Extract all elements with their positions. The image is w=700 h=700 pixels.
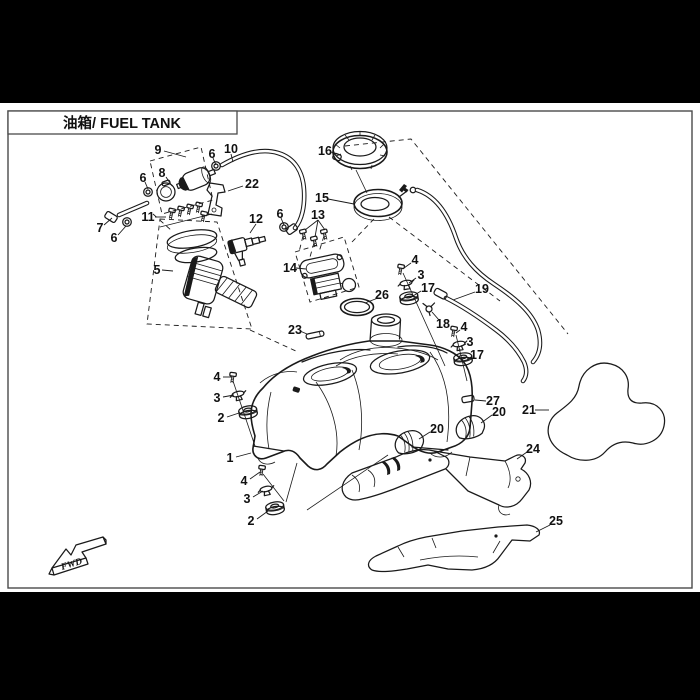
callout-label-20: 20 (430, 422, 444, 436)
callout-label-6: 6 (277, 207, 284, 221)
callout-label-19: 19 (475, 282, 489, 296)
callout-label-16: 16 (318, 144, 332, 158)
callout-label-26: 26 (375, 288, 389, 302)
callout-label-4: 4 (412, 253, 419, 267)
callout-label-13: 13 (311, 208, 325, 222)
callout-label-9: 9 (155, 143, 162, 157)
callout-label-14: 14 (283, 261, 297, 275)
callout-label-18: 18 (436, 317, 450, 331)
callout-label-4: 4 (214, 370, 221, 384)
callout-label-6: 6 (209, 147, 216, 161)
page-title: 油箱/ FUEL TANK (63, 114, 181, 132)
callout-label-2: 2 (248, 514, 255, 528)
callout-label-17: 17 (421, 281, 435, 295)
callout-label-15: 15 (315, 191, 329, 205)
callout-label-7: 7 (97, 221, 104, 235)
callout-label-4: 4 (461, 320, 468, 334)
callout-label-6: 6 (111, 231, 118, 245)
callout-label-1: 1 (227, 451, 234, 465)
callout-label-11: 11 (141, 210, 154, 224)
callout-label-3: 3 (467, 335, 474, 349)
callout-label-21: 21 (522, 403, 536, 417)
callout-label-3: 3 (244, 492, 251, 506)
callout-label-10: 10 (224, 142, 238, 156)
callout-label-17: 17 (470, 348, 484, 362)
diagram-page: 油箱/ FUEL TANK (0, 0, 700, 700)
callout-label-27: 27 (486, 394, 500, 408)
callout-label-3: 3 (418, 268, 425, 282)
callout-label-25: 25 (549, 514, 563, 528)
callout-label-2: 2 (218, 411, 225, 425)
callout-label-4: 4 (241, 474, 248, 488)
title-block: 油箱/ FUEL TANK (8, 111, 237, 134)
callout-label-12: 12 (249, 212, 263, 226)
fuel-tank-exploded-diagram: 油箱/ FUEL TANK (0, 0, 700, 700)
callout-label-23: 23 (288, 323, 302, 337)
callout-label-6: 6 (140, 171, 147, 185)
callout-label-3: 3 (214, 391, 221, 405)
paper (0, 103, 700, 592)
callout-label-22: 22 (245, 177, 259, 191)
callout-label-24: 24 (526, 442, 540, 456)
callout-label-8: 8 (159, 166, 166, 180)
callout-label-5: 5 (154, 263, 161, 277)
